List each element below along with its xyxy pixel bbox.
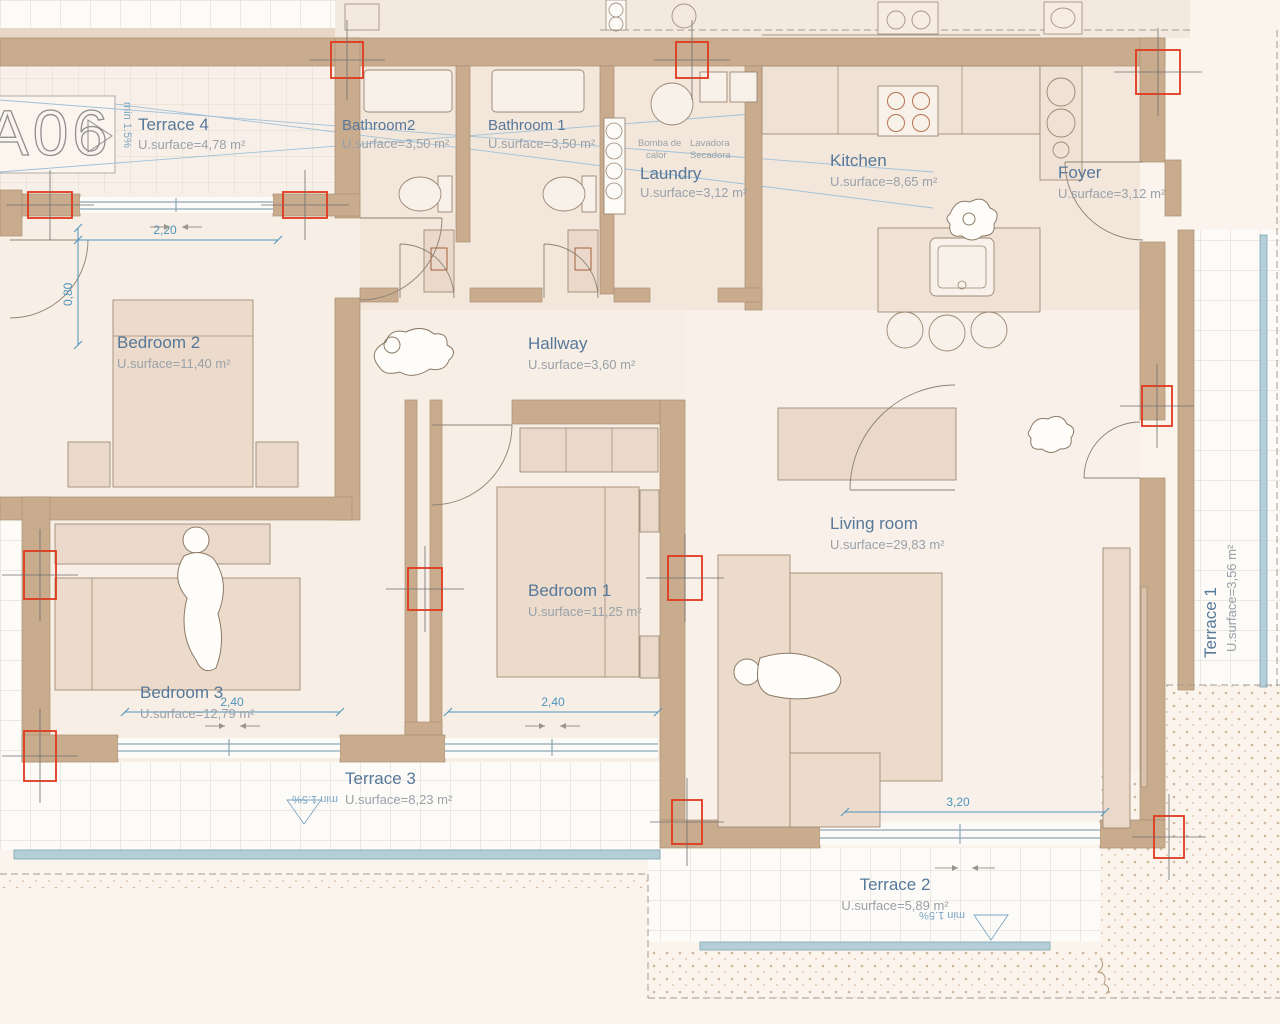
bedroom-3-window	[118, 738, 340, 758]
svg-text:0,80: 0,80	[61, 282, 75, 306]
terrace-4-slope-note: min 1.5%	[121, 102, 133, 148]
svg-text:Terrace 4: Terrace 4	[138, 115, 209, 134]
terrace-3-floor	[0, 762, 660, 850]
svg-text:Foyer: Foyer	[1058, 163, 1102, 182]
svg-text:U.surface=3,50 m²: U.surface=3,50 m²	[488, 136, 596, 151]
svg-text:Lavadora: Lavadora	[690, 138, 730, 149]
hob	[878, 86, 938, 136]
svg-text:3,20: 3,20	[946, 795, 970, 809]
unit-label: A06	[0, 97, 112, 169]
svg-text:U.surface=8,65 m²: U.surface=8,65 m²	[830, 174, 938, 189]
svg-text:Terrace 3: Terrace 3	[345, 769, 416, 788]
svg-text:Bedroom 3: Bedroom 3	[140, 683, 223, 702]
svg-text:calor: calor	[646, 150, 667, 161]
bedroom-3-furniture	[55, 524, 300, 690]
svg-text:Laundry: Laundry	[640, 164, 702, 183]
terrace-1-balustrade	[1260, 235, 1267, 687]
svg-text:U.surface=3,50 m²: U.surface=3,50 m²	[342, 136, 450, 151]
stool	[929, 315, 965, 351]
bedroom-1-window	[445, 738, 658, 758]
svg-text:U.surface=11,40 m²: U.surface=11,40 m²	[117, 356, 231, 371]
terrace-2-balustrade	[700, 942, 1050, 950]
svg-text:2,40: 2,40	[541, 695, 565, 709]
sideboard	[778, 408, 956, 480]
svg-text:U.surface=11,25 m²: U.surface=11,25 m²	[528, 604, 642, 619]
svg-text:min 1.5%: min 1.5%	[919, 909, 965, 921]
svg-text:Hallway: Hallway	[528, 334, 588, 353]
bedroom-1-furniture	[497, 428, 659, 678]
svg-text:Bedroom 1: Bedroom 1	[528, 581, 611, 600]
nightstand	[640, 636, 659, 678]
heat-pump	[651, 83, 693, 125]
svg-text:U.surface=3,60 m²: U.surface=3,60 m²	[528, 357, 636, 372]
svg-text:Bathroom2: Bathroom2	[342, 117, 415, 134]
floor-plan-canvas: A06 min 1.5%	[0, 0, 1280, 1024]
bed	[113, 300, 253, 487]
svg-text:U.surface=29,83 m²: U.surface=29,83 m²	[830, 537, 945, 552]
nightstand	[640, 490, 659, 532]
tv-sideboard	[1103, 548, 1130, 828]
svg-text:Bathroom 1: Bathroom 1	[488, 117, 566, 134]
svg-text:U.surface=12,79 m²: U.surface=12,79 m²	[140, 706, 255, 721]
dresser	[55, 524, 270, 564]
stool	[971, 312, 1007, 348]
svg-text:min 1.5%: min 1.5%	[292, 793, 338, 805]
svg-text:U.surface=4,78 m²: U.surface=4,78 m²	[138, 137, 246, 152]
bedroom-2-window	[80, 197, 273, 213]
svg-text:U.surface=3,56 m²: U.surface=3,56 m²	[1224, 544, 1239, 652]
svg-text:Terrace 2: Terrace 2	[860, 875, 931, 894]
nightstand	[68, 442, 110, 487]
washer	[700, 72, 727, 102]
dryer	[730, 72, 757, 102]
svg-text:Bedroom 2: Bedroom 2	[117, 333, 200, 352]
svg-text:Living room: Living room	[830, 514, 918, 533]
tv-on-wall	[1141, 587, 1147, 787]
svg-text:Bomba de: Bomba de	[638, 138, 681, 149]
svg-text:U.surface=8,23 m²: U.surface=8,23 m²	[345, 792, 453, 807]
svg-text:Kitchen: Kitchen	[830, 151, 887, 170]
terrace-3-balustrade	[14, 850, 660, 859]
svg-text:Secadora: Secadora	[690, 150, 731, 161]
stool	[887, 312, 923, 348]
svg-text:U.surface=3,12 m²: U.surface=3,12 m²	[1058, 186, 1166, 201]
svg-text:Terrace 1: Terrace 1	[1201, 587, 1220, 658]
svg-text:U.surface=3,12 m²: U.surface=3,12 m²	[640, 185, 748, 200]
wardrobe	[520, 428, 658, 472]
floor-plan-drawing: A06 min 1.5%	[0, 0, 1280, 1024]
terrace-2-floor	[648, 848, 1100, 942]
nightstand	[256, 442, 298, 487]
sofa-corner	[790, 753, 880, 827]
